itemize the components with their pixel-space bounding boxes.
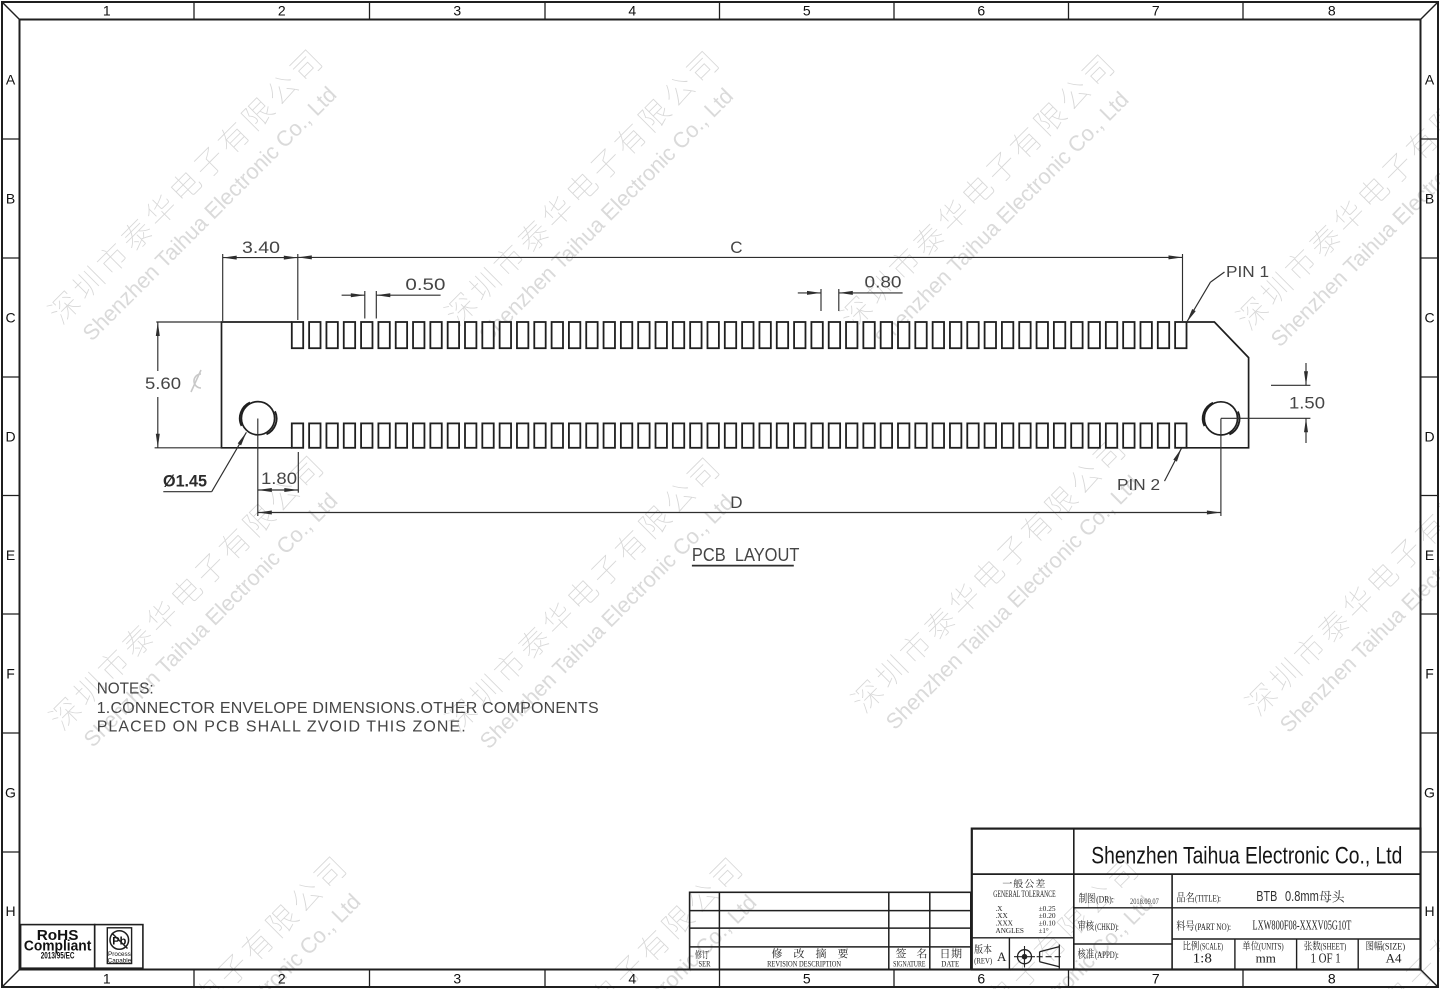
svg-text:D: D	[730, 493, 743, 512]
svg-text:(PART NO):: (PART NO):	[1195, 922, 1231, 932]
svg-text:H: H	[5, 903, 15, 919]
svg-text:BTB: BTB	[1256, 888, 1277, 905]
svg-text:Shenzhen Taihua Electronic Co.: Shenzhen Taihua Electronic Co., Ltd	[1091, 843, 1402, 870]
svg-text:F: F	[1425, 666, 1434, 682]
svg-text:G: G	[1424, 785, 1435, 801]
svg-text:A: A	[6, 71, 16, 87]
svg-text:1.CONNECTOR ENVELOPE DIMENSION: 1.CONNECTOR ENVELOPE DIMENSIONS.OTHER CO…	[97, 700, 599, 717]
svg-text:(REV): (REV)	[974, 956, 992, 966]
svg-text:1 OF 1: 1 OF 1	[1310, 950, 1340, 965]
svg-text:7: 7	[1152, 3, 1160, 19]
svg-text:2: 2	[278, 971, 286, 987]
svg-text:PIN 1: PIN 1	[1226, 264, 1269, 281]
svg-text:3: 3	[453, 971, 461, 987]
svg-text:4: 4	[628, 971, 636, 987]
svg-text:LXW800F08-XXXV05G10T: LXW800F08-XXXV05G10T	[1253, 918, 1352, 933]
svg-text:6: 6	[977, 971, 985, 987]
svg-text:3.40: 3.40	[242, 238, 280, 257]
svg-text:8: 8	[1328, 971, 1336, 987]
svg-text:ANGLES: ANGLES	[996, 927, 1024, 935]
svg-text:F: F	[6, 666, 15, 682]
svg-text:NOTES:: NOTES:	[97, 681, 154, 698]
svg-text:0.8mm: 0.8mm	[1285, 888, 1319, 905]
svg-text:PLACED ON PCB SHALL ZVOID THIS: PLACED ON PCB SHALL ZVOID THIS ZONE.	[97, 719, 466, 736]
svg-text:8: 8	[1328, 3, 1336, 19]
svg-text:(DR):: (DR):	[1096, 894, 1114, 905]
svg-text:REVISION DESCRIPTION: REVISION DESCRIPTION	[767, 960, 841, 969]
svg-text:5.60: 5.60	[145, 374, 181, 393]
svg-text:A: A	[1425, 71, 1435, 87]
svg-text:3: 3	[453, 3, 461, 19]
svg-text:D: D	[1424, 428, 1434, 444]
svg-text:1.50: 1.50	[1289, 394, 1325, 413]
svg-text:5: 5	[803, 971, 811, 987]
svg-text:A: A	[997, 949, 1007, 964]
svg-text:C: C	[730, 238, 743, 257]
svg-text:6: 6	[977, 3, 985, 19]
svg-text:2: 2	[278, 3, 286, 19]
svg-text:C: C	[1424, 310, 1434, 326]
svg-text:4: 4	[628, 3, 636, 19]
svg-text:DATE: DATE	[941, 960, 959, 969]
svg-text:PCB LAYOUT: PCB LAYOUT	[692, 544, 800, 565]
svg-text:SIGNATURE: SIGNATURE	[893, 960, 925, 969]
svg-text:7: 7	[1152, 971, 1160, 987]
svg-text:B: B	[1425, 191, 1434, 207]
svg-text:E: E	[6, 547, 15, 563]
svg-text:1: 1	[103, 3, 111, 19]
svg-text:B: B	[6, 191, 15, 207]
svg-text:PIN 2: PIN 2	[1117, 477, 1160, 494]
svg-text:(CHKD):: (CHKD):	[1095, 922, 1119, 933]
svg-text:1:8: 1:8	[1193, 950, 1213, 965]
svg-text:Ø1.45: Ø1.45	[163, 472, 207, 491]
svg-text:mm: mm	[1256, 950, 1276, 965]
svg-text:0.50: 0.50	[405, 275, 445, 294]
svg-text:±1°: ±1°	[1039, 927, 1049, 935]
svg-text:2013/95/EC: 2013/95/EC	[41, 951, 75, 961]
svg-text:C: C	[5, 310, 15, 326]
svg-text:5: 5	[803, 3, 811, 19]
svg-text:(TITLE):: (TITLE):	[1195, 894, 1221, 904]
svg-text:1: 1	[103, 971, 111, 987]
svg-text:GENERAL TOLERANCE: GENERAL TOLERANCE	[993, 889, 1056, 899]
svg-text:1.80: 1.80	[261, 469, 297, 488]
svg-text:(APPD):: (APPD):	[1095, 950, 1119, 961]
svg-text:SER: SER	[699, 960, 712, 969]
svg-text:E: E	[1425, 547, 1434, 563]
svg-text:A4: A4	[1386, 950, 1402, 965]
svg-text:2018.09.07: 2018.09.07	[1130, 897, 1159, 906]
svg-text:G: G	[5, 785, 16, 801]
svg-text:D: D	[5, 428, 15, 444]
svg-text:H: H	[1424, 903, 1434, 919]
svg-text:0.80: 0.80	[865, 273, 902, 292]
svg-text:Capable: Capable	[108, 957, 132, 964]
